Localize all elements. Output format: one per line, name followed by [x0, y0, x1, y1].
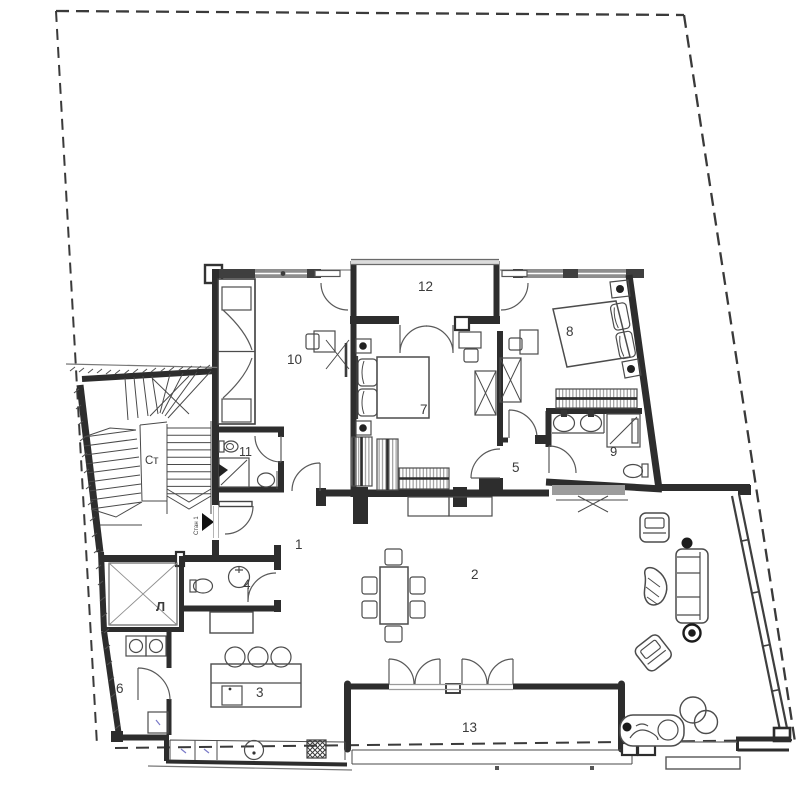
svg-text:7: 7	[420, 402, 428, 417]
svg-text:13: 13	[462, 720, 477, 735]
svg-text:5: 5	[512, 460, 520, 475]
svg-text:8: 8	[566, 324, 574, 339]
svg-text:10: 10	[287, 352, 302, 367]
svg-text:Стан 1: Стан 1	[194, 516, 200, 535]
svg-text:6: 6	[116, 681, 124, 696]
svg-text:2: 2	[471, 567, 479, 582]
svg-text:4: 4	[243, 577, 251, 592]
svg-text:11: 11	[239, 445, 252, 459]
svg-text:9: 9	[610, 444, 617, 459]
svg-text:Л: Л	[156, 599, 165, 614]
svg-text:1: 1	[295, 537, 303, 552]
svg-text:3: 3	[256, 685, 264, 700]
svg-text:12: 12	[418, 279, 433, 294]
svg-text:Ст: Ст	[145, 455, 159, 467]
